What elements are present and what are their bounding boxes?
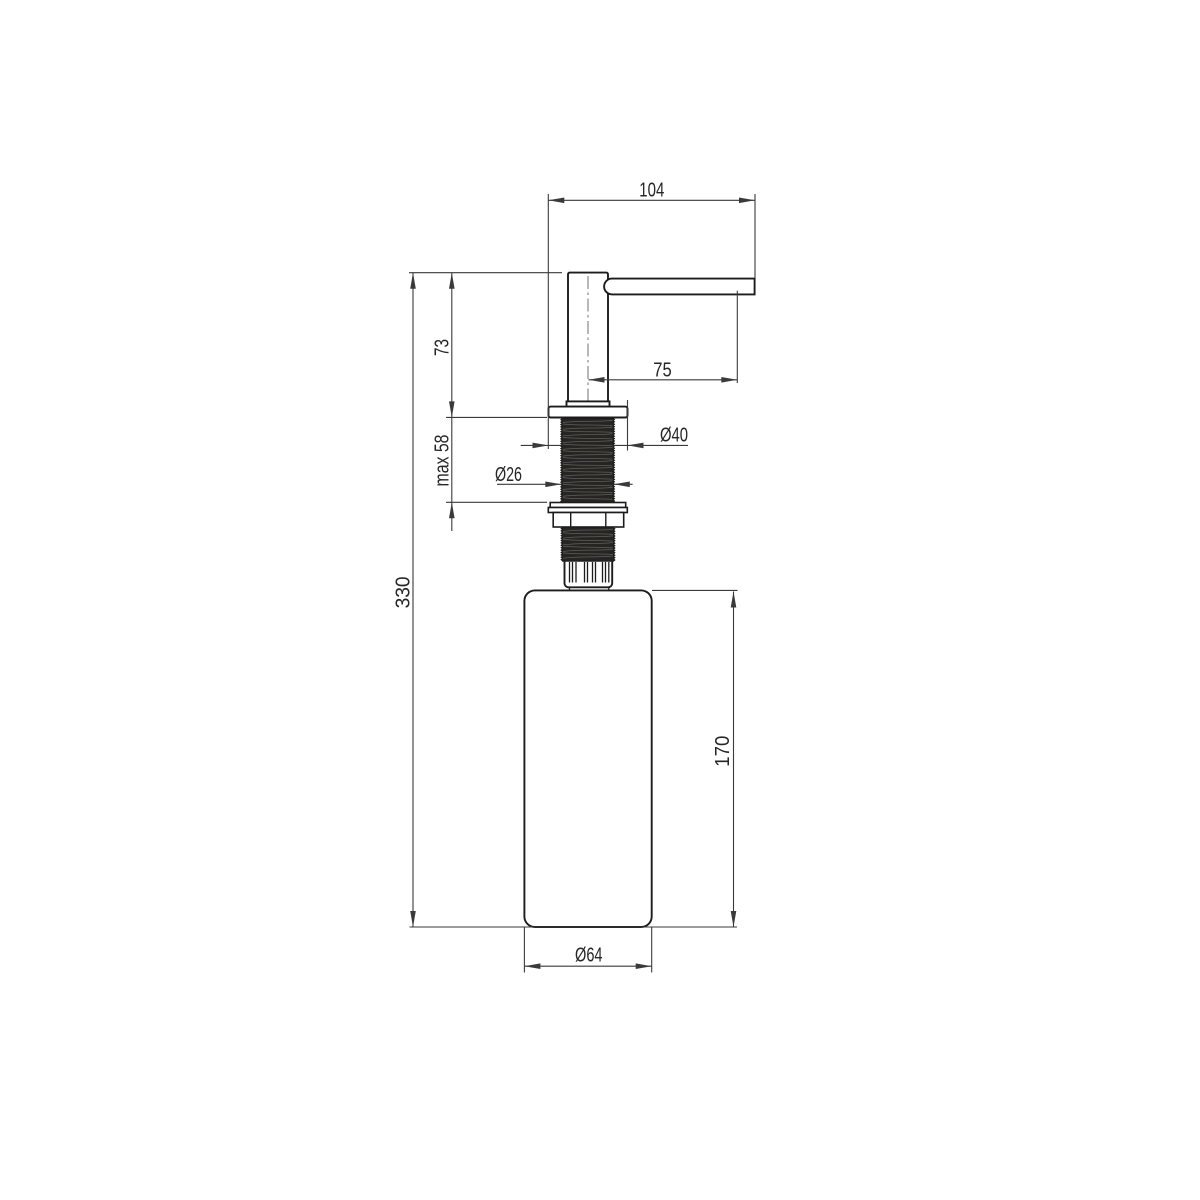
svg-text:75: 75 <box>653 359 672 381</box>
svg-text:170: 170 <box>712 736 734 767</box>
svg-text:73: 73 <box>431 339 453 356</box>
svg-text:330: 330 <box>392 576 414 608</box>
svg-text:Ø64: Ø64 <box>575 944 603 966</box>
svg-text:104: 104 <box>639 180 664 202</box>
svg-text:Ø26: Ø26 <box>495 464 522 486</box>
svg-text:max 58: max 58 <box>431 435 453 487</box>
svg-text:Ø40: Ø40 <box>660 424 688 446</box>
